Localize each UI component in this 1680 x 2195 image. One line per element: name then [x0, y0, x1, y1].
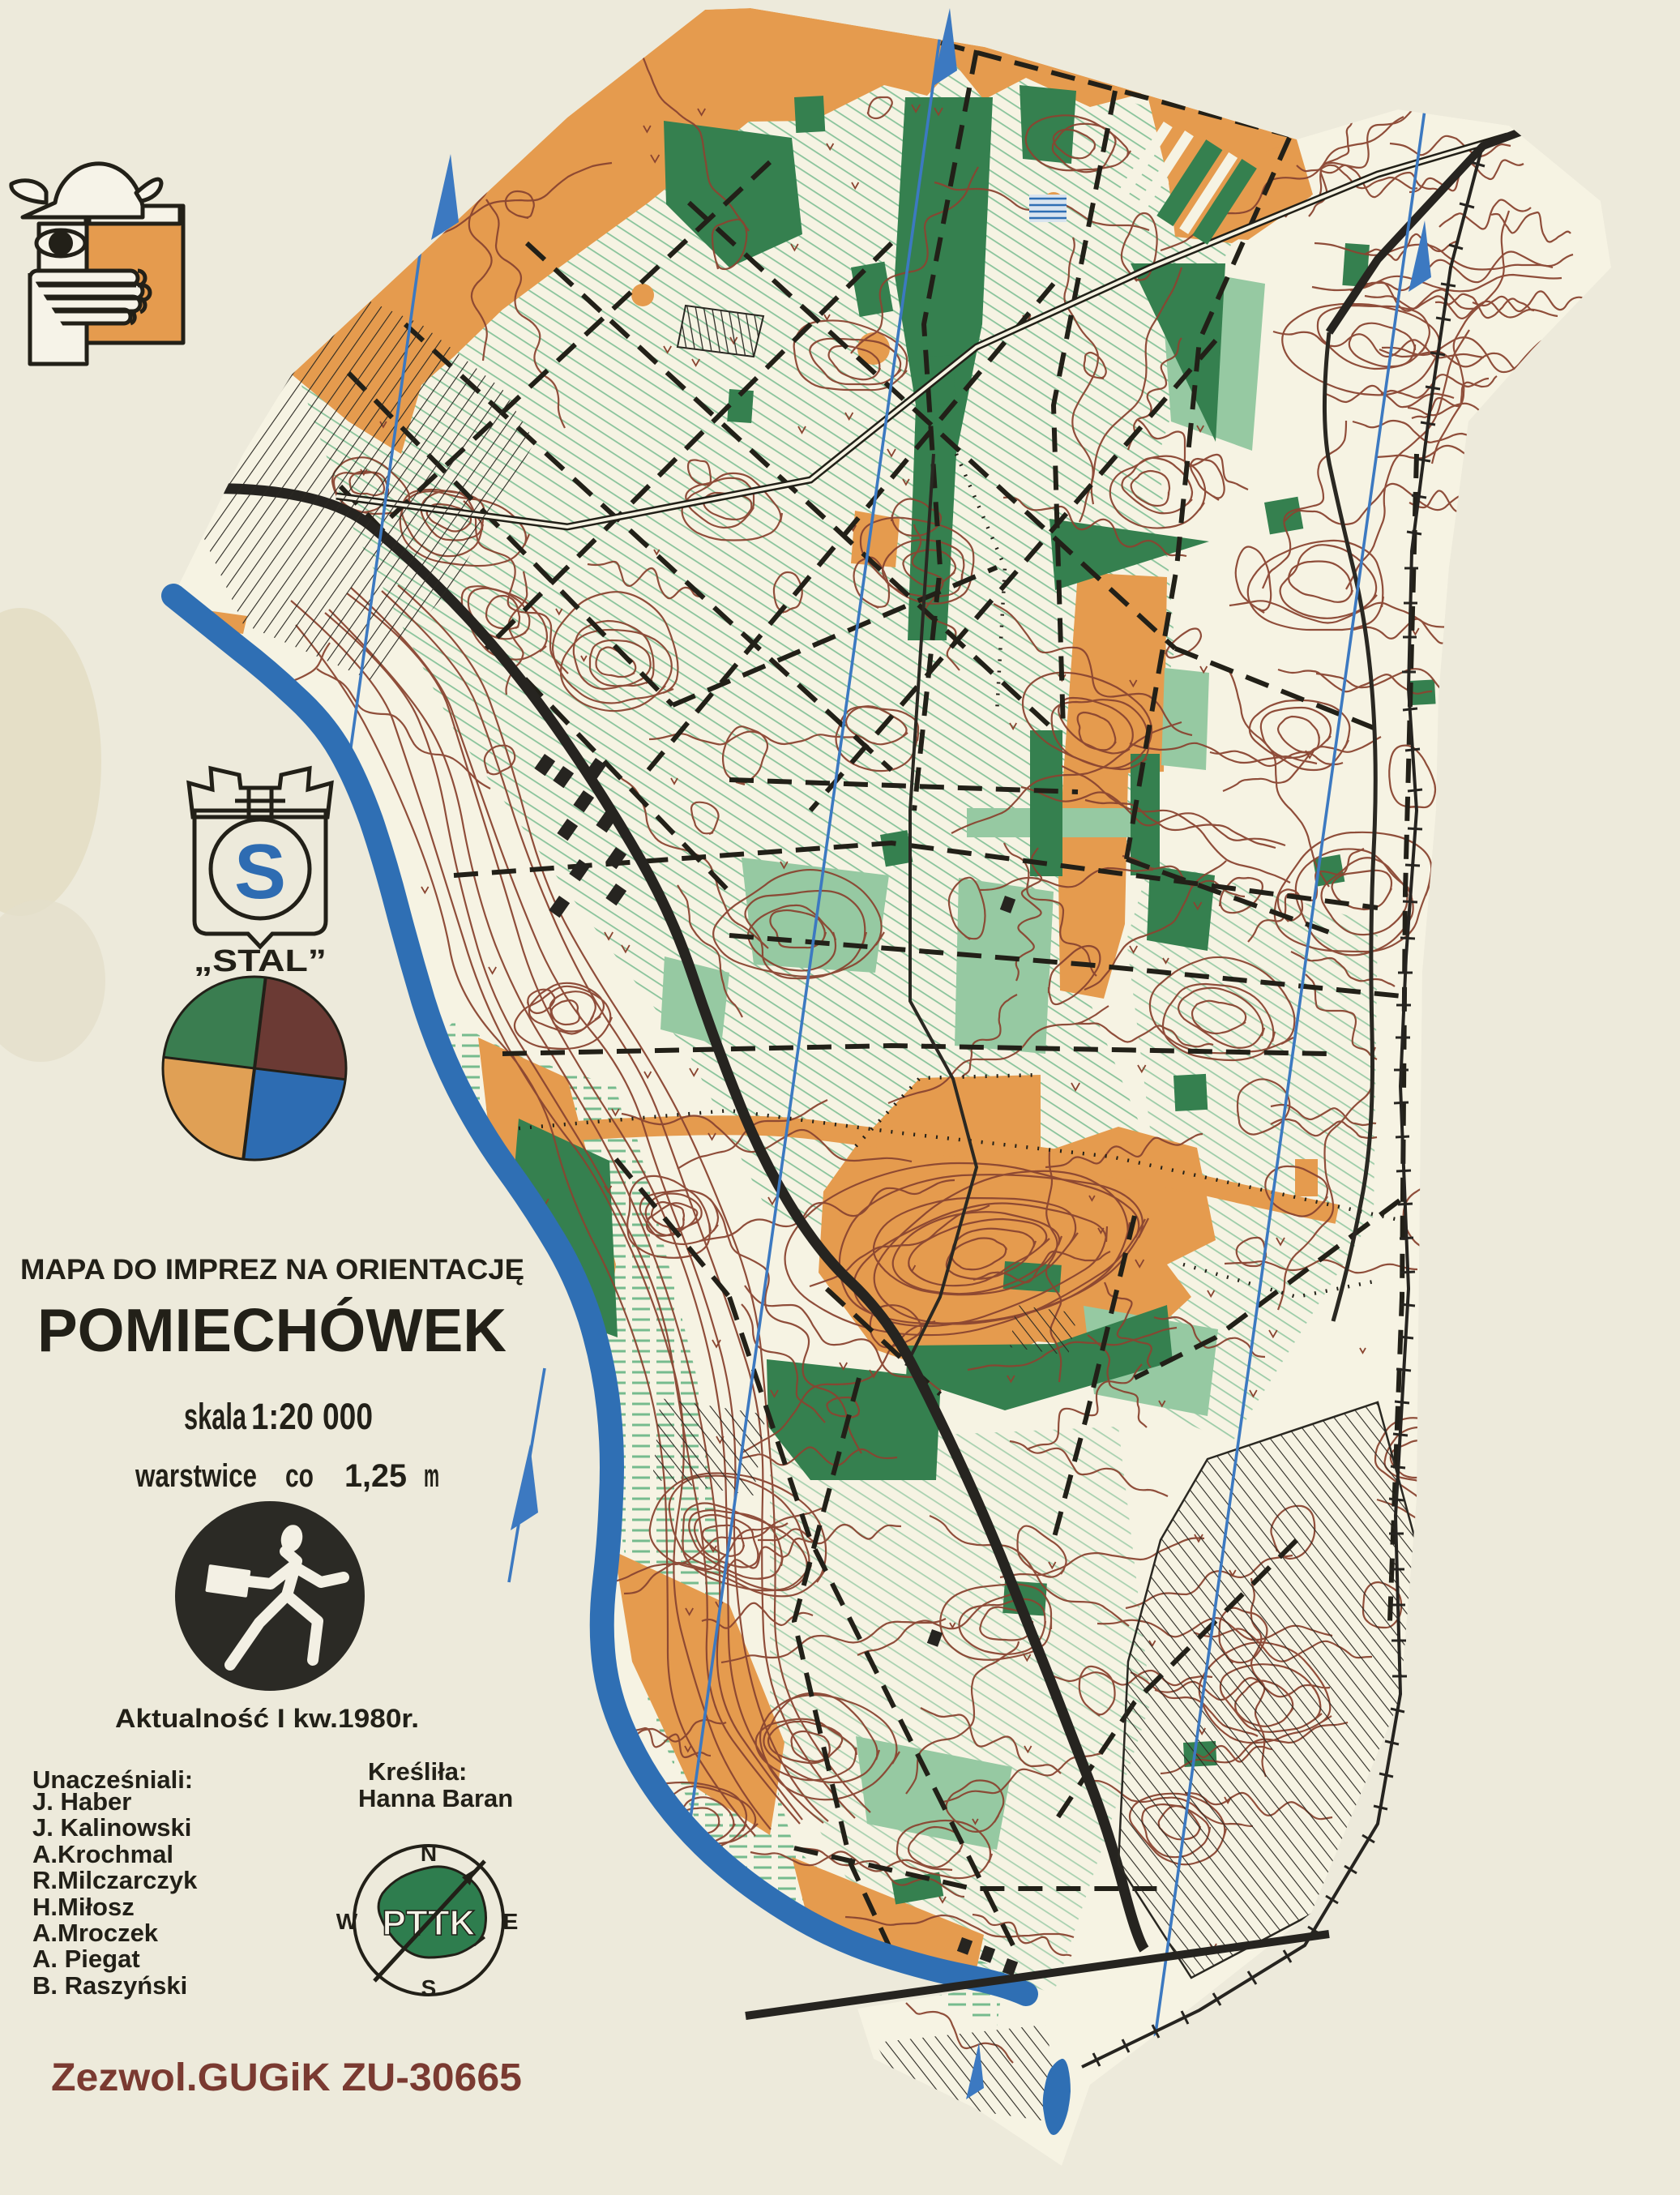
svg-text:W: W	[336, 1909, 358, 1934]
svg-text:H.Miłosz: H.Miłosz	[32, 1893, 135, 1921]
svg-text:E: E	[503, 1909, 519, 1934]
svg-text:warstwiceco1,25m: warstwiceco1,25m	[135, 1458, 439, 1494]
svg-text:A. Piegat: A. Piegat	[32, 1945, 140, 1973]
svg-text:Kreśliła:: Kreśliła:	[368, 1757, 467, 1786]
svg-text:S: S	[421, 1975, 437, 2000]
svg-text:N: N	[421, 1841, 437, 1866]
svg-text:B. Raszyński: B. Raszyński	[32, 1971, 187, 2000]
svg-text:Zezwol.GUGiK ZU-30665: Zezwol.GUGiK ZU-30665	[51, 2056, 522, 2099]
svg-text:A.Krochmal: A.Krochmal	[32, 1840, 173, 1868]
svg-text:J. Kalinowski: J. Kalinowski	[32, 1813, 191, 1842]
svg-text:Hanna Baran: Hanna Baran	[358, 1784, 513, 1812]
svg-text:skala1:20000: skala1:20000	[184, 1396, 373, 1437]
svg-text:MAPA DO IMPREZ NA ORIENTACJĘ: MAPA DO IMPREZ NA ORIENTACJĘ	[20, 1254, 524, 1286]
svg-text:„STAL”: „STAL”	[194, 944, 327, 978]
svg-text:R.Milczarczyk: R.Milczarczyk	[32, 1866, 198, 1894]
svg-text:J. Haber: J. Haber	[32, 1787, 131, 1816]
svg-text:A.Mroczek: A.Mroczek	[32, 1919, 159, 1947]
svg-text:Aktualność I kw.1980r.: Aktualność I kw.1980r.	[115, 1704, 419, 1733]
svg-text:POMIECHÓWEK: POMIECHÓWEK	[37, 1296, 507, 1364]
svg-text:S: S	[234, 828, 286, 915]
